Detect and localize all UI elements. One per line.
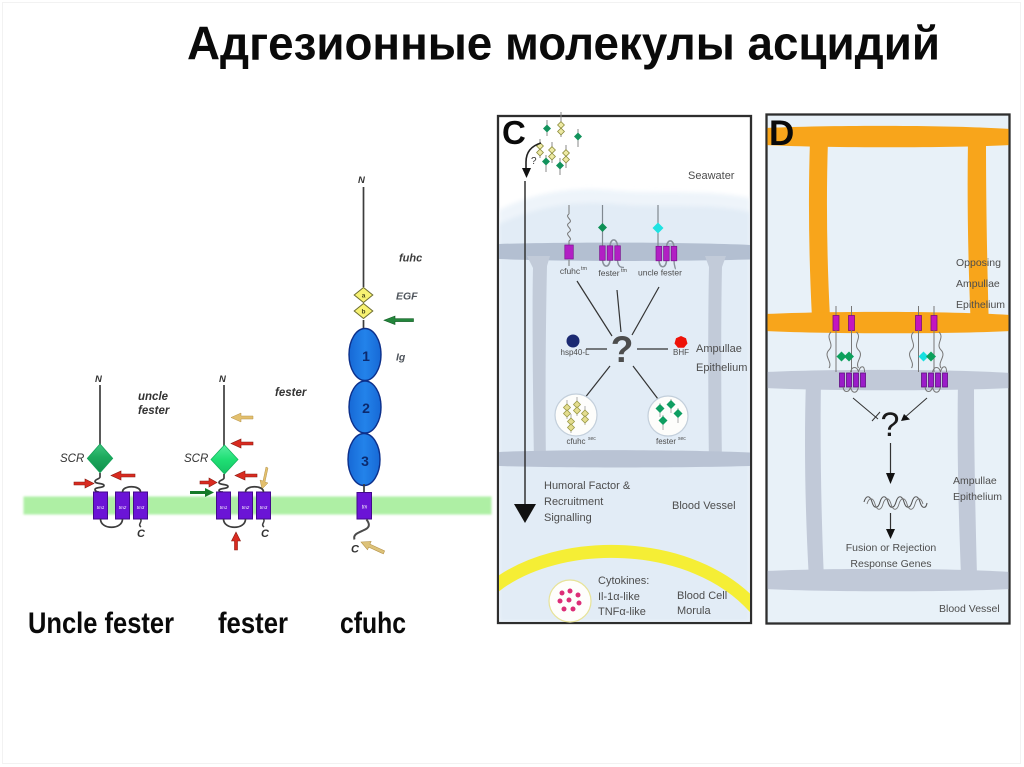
svg-text:Ampullae: Ampullae: [956, 278, 1000, 290]
svg-text:tm1: tm1: [220, 505, 228, 510]
svg-text:Ampullae: Ampullae: [696, 343, 742, 355]
svg-text:Signalling: Signalling: [544, 512, 592, 524]
svg-text:Ig: Ig: [396, 352, 406, 364]
svg-text:b: b: [362, 309, 366, 316]
svg-text:tm3: tm3: [260, 505, 268, 510]
svg-text:N: N: [95, 374, 103, 385]
svg-text:Blood Vessel: Blood Vessel: [939, 603, 1000, 615]
svg-text:BHF: BHF: [673, 348, 689, 357]
svg-text:Opposing: Opposing: [956, 257, 1001, 269]
svg-text:C: C: [137, 528, 146, 540]
svg-text:cfuhc: cfuhc: [560, 266, 581, 276]
svg-text:C: C: [502, 114, 526, 151]
svg-text:C: C: [261, 528, 270, 540]
svg-text:fester: fester: [598, 268, 619, 278]
svg-text:2: 2: [362, 400, 370, 416]
svg-text:fester: fester: [218, 607, 288, 640]
svg-text:Адгезионные молекулы асцидий: Адгезионные молекулы асцидий: [187, 17, 940, 70]
svg-text:SCR: SCR: [184, 453, 208, 465]
svg-text:?: ?: [881, 406, 900, 444]
svg-text:SCR: SCR: [60, 453, 84, 465]
svg-text:Morula: Morula: [677, 605, 712, 617]
svg-text:cfuhc: cfuhc: [566, 437, 585, 446]
svg-text:tm: tm: [362, 505, 368, 511]
svg-text:tm2: tm2: [242, 505, 250, 510]
svg-text:D: D: [769, 114, 794, 153]
svg-text:sec: sec: [588, 436, 596, 442]
svg-text:fester: fester: [656, 437, 676, 446]
svg-text:tm: tm: [581, 266, 588, 272]
svg-text:Epithelium: Epithelium: [696, 362, 747, 374]
svg-text:?: ?: [531, 156, 537, 167]
svg-text:fuhc: fuhc: [399, 253, 422, 265]
svg-text:Epithelium: Epithelium: [953, 491, 1002, 503]
svg-text:Fusion or Rejection: Fusion or Rejection: [846, 542, 937, 554]
svg-text:3: 3: [361, 453, 369, 469]
svg-text:Response Genes: Response Genes: [850, 558, 931, 570]
svg-text:sec: sec: [678, 436, 686, 442]
svg-text:Epithelium: Epithelium: [956, 299, 1005, 311]
svg-text:N: N: [219, 374, 227, 385]
svg-text:tm: tm: [621, 268, 628, 274]
svg-text:uncle: uncle: [138, 391, 169, 403]
svg-text:tm2: tm2: [119, 505, 127, 510]
svg-text:tm3: tm3: [137, 505, 145, 510]
svg-text:Recruitment: Recruitment: [544, 496, 603, 508]
svg-text:a: a: [362, 293, 366, 300]
svg-text:Seawater: Seawater: [688, 170, 735, 182]
svg-text:fester: fester: [275, 387, 307, 399]
svg-text:?: ?: [611, 329, 634, 370]
svg-text:C: C: [351, 544, 360, 556]
svg-text:1: 1: [362, 348, 370, 364]
svg-text:hsp40-L: hsp40-L: [561, 348, 590, 357]
svg-text:EGF: EGF: [396, 291, 418, 303]
svg-text:Ampullae: Ampullae: [953, 475, 997, 487]
svg-text:tm1: tm1: [97, 505, 105, 510]
svg-text:cfuhc: cfuhc: [340, 607, 406, 640]
svg-text:Humoral Factor &: Humoral Factor &: [544, 480, 631, 492]
svg-text:Cytokines:: Cytokines:: [598, 575, 649, 587]
svg-text:uncle fester: uncle fester: [638, 268, 682, 278]
svg-text:Blood Cell: Blood Cell: [677, 590, 727, 602]
svg-text:Blood Vessel: Blood Vessel: [672, 500, 736, 512]
svg-text:Uncle fester: Uncle fester: [28, 607, 174, 640]
svg-text:N: N: [358, 175, 366, 186]
svg-text:Il-1α-like: Il-1α-like: [598, 591, 640, 603]
svg-text:fester: fester: [138, 405, 170, 417]
svg-text:TNFα-like: TNFα-like: [598, 606, 646, 618]
